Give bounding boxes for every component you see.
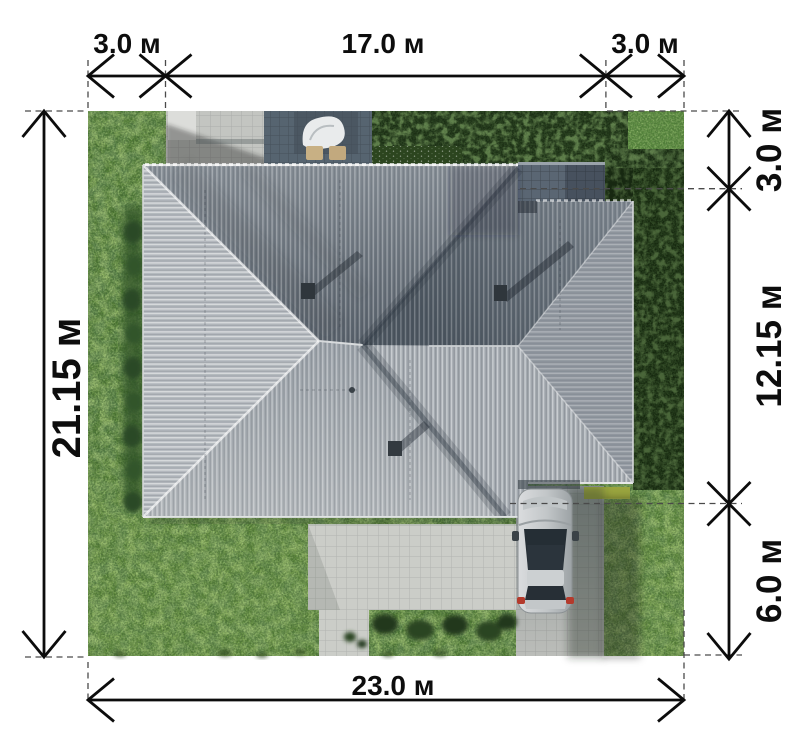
svg-text:3.0 м: 3.0 м: [611, 28, 678, 59]
svg-text:12.15 м: 12.15 м: [750, 284, 789, 407]
svg-text:21.15 м: 21.15 м: [45, 318, 89, 459]
svg-text:23.0 м: 23.0 м: [352, 670, 435, 701]
svg-text:17.0 м: 17.0 м: [342, 28, 425, 59]
svg-text:3.0 м: 3.0 м: [750, 108, 789, 192]
svg-text:3.0 м: 3.0 м: [93, 28, 160, 59]
svg-text:6.0 м: 6.0 м: [750, 539, 789, 623]
